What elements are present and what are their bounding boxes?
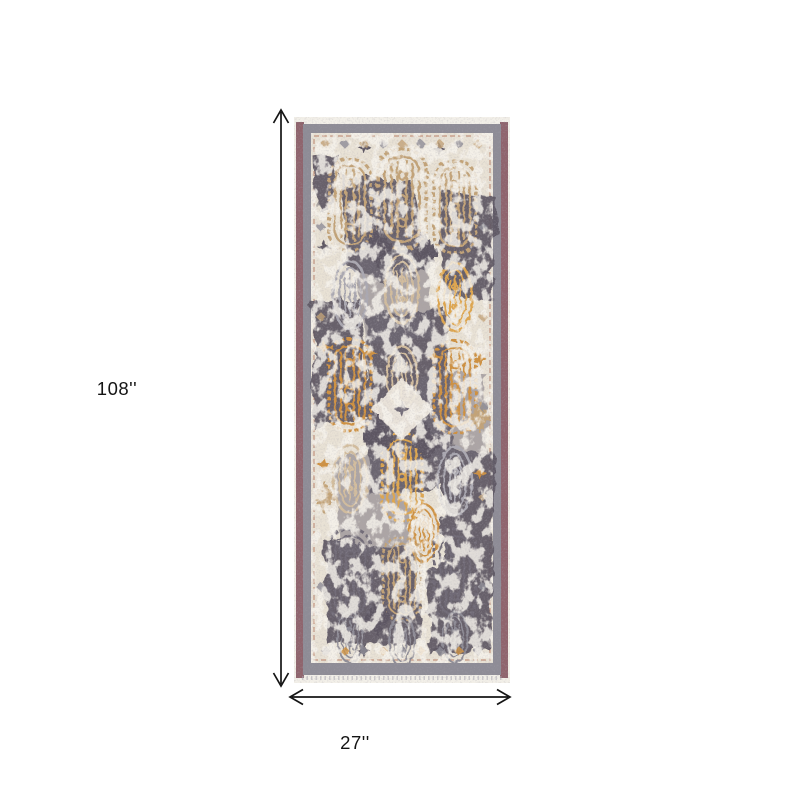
width-dimension-label: 27''	[315, 731, 395, 755]
rug-artwork	[294, 117, 510, 683]
rug-product-image	[294, 117, 510, 683]
height-dimension-label: 108''	[77, 377, 157, 401]
height-dimension-arrow	[272, 106, 290, 690]
dimension-diagram: 108'' 27''	[0, 0, 800, 800]
width-dimension-arrow	[286, 688, 514, 706]
